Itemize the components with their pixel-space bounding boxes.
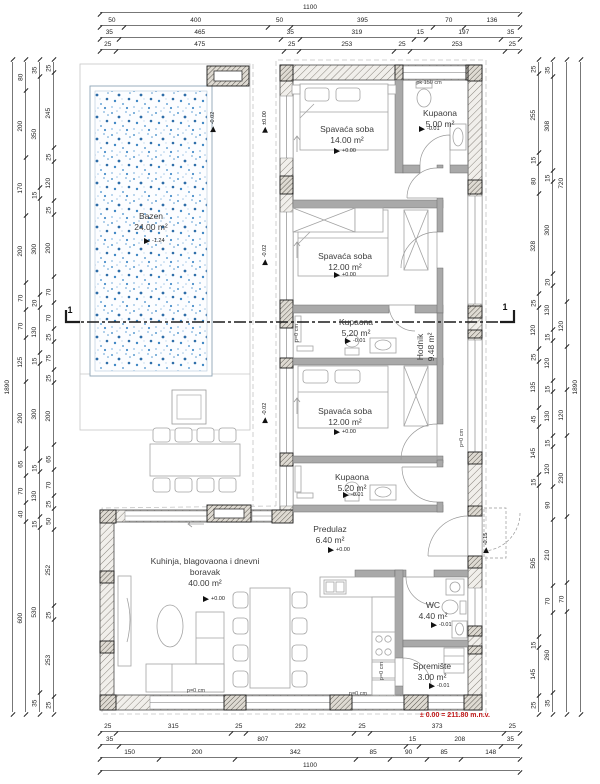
dimension-value: 15 <box>545 175 552 182</box>
dimension-segment: 308 <box>546 79 555 174</box>
elevation-marker: -0.15 <box>483 533 489 554</box>
dimension-chain: 358071520835 <box>100 736 520 745</box>
dimension-segment: 1100 <box>100 4 520 13</box>
dimension-segment: 35 <box>501 736 520 745</box>
room-name: Kuhinja, blagovaona i dnevni boravak <box>144 556 266 578</box>
dimension-segment: 25 <box>100 41 116 50</box>
elevation-marker: -0.01 <box>419 126 440 132</box>
dimension-value: 35 <box>507 30 514 37</box>
dimension-chain: 1890 <box>6 62 15 712</box>
elevation-value: -0.01 <box>439 622 452 628</box>
dimension-segment: 135 <box>532 364 541 409</box>
dimension-value: 25 <box>104 724 111 731</box>
elevation-value: -0.15 <box>483 533 489 546</box>
dimension-segment: 300 <box>33 366 42 462</box>
elevation-flag-icon <box>431 622 437 628</box>
dimension-value: 80 <box>18 74 25 81</box>
dimension-segment: 197 <box>426 29 501 38</box>
dimension-value: 65 <box>18 461 25 468</box>
dimension-value: 25 <box>46 611 53 618</box>
dimension-value: 150 <box>124 750 135 757</box>
dimension-chain: 802001702007070125200657040600 <box>19 62 28 712</box>
dimension-segment: 130 <box>546 288 555 332</box>
elevation-marker: +0.00 <box>334 148 356 154</box>
dimension-segment: 200 <box>159 749 234 758</box>
dimension-value: 253 <box>341 42 352 49</box>
elevation-value: ±0.00 <box>262 111 268 125</box>
dimension-segment: 150 <box>100 749 159 758</box>
dimension-value: 25 <box>104 42 111 49</box>
dimension-segment: 25 <box>231 723 247 732</box>
room-name: Spavaća soba <box>303 406 387 417</box>
dimension-chain: 252551580328251202513545145155051514525 <box>532 62 541 712</box>
dimension-segment: 120 <box>560 304 569 350</box>
datum-note: ± 0.00 = 211.80 m.n.v. <box>420 712 490 719</box>
elevation-value: +0.00 <box>342 148 356 154</box>
dimension-segment: 125 <box>19 340 28 384</box>
dimension-value: 120 <box>46 178 53 189</box>
dimension-segment: 148 <box>461 749 520 758</box>
dimension-value: 40 <box>18 511 25 518</box>
dimension-segment: 200 <box>47 217 56 279</box>
dimension-segment: 35 <box>281 29 300 38</box>
dimension-value: 15 <box>545 440 552 447</box>
elevation-value: -0.01 <box>351 492 364 498</box>
dimension-segment: 25 <box>284 41 300 50</box>
room-label: Spavaća soba 12.00 m² <box>303 251 387 273</box>
dimension-chain: 25475252532525325 <box>100 41 520 50</box>
elevation-marker: ±0.00 <box>262 111 268 133</box>
dimension-segment: 315 <box>116 723 231 732</box>
dimension-segment: 136 <box>464 17 520 26</box>
room-area: 6.40 m² <box>300 535 360 546</box>
dimension-value: 200 <box>18 121 25 132</box>
dimension-segment: 210 <box>546 522 555 589</box>
dimension-segment: 25 <box>47 699 56 712</box>
elevation-flag-icon <box>144 238 150 244</box>
dimension-value: 85 <box>370 750 377 757</box>
dimension-value: 125 <box>18 357 25 368</box>
dimension-value: 70 <box>18 323 25 330</box>
plan-note: p=0 cm <box>459 429 465 447</box>
dimension-value: 35 <box>287 30 294 37</box>
dimension-value: 15 <box>417 30 424 37</box>
room-name: WC <box>408 600 458 611</box>
dimension-value: 50 <box>46 518 53 525</box>
dimension-segment: 1890 <box>6 62 15 712</box>
dimension-segment: 600 <box>19 524 28 712</box>
plan-note: p=0 cm <box>349 691 367 697</box>
dimension-segment: 90 <box>390 749 426 758</box>
dimension-chain: 25315252922537325 <box>100 723 520 732</box>
room-name: Kupaona <box>410 108 470 119</box>
dimension-segment: 35 <box>100 736 119 745</box>
elevation-value: +0.00 <box>211 596 225 602</box>
room-name: Predulaz <box>300 524 360 535</box>
room-label: Spremište 3.00 m² <box>402 661 462 683</box>
room-name: Spavaća soba <box>303 251 387 262</box>
dimension-value: 20 <box>32 300 39 307</box>
dimension-segment: 130 <box>33 474 42 519</box>
dimension-segment: 350 <box>33 79 42 190</box>
dimension-value: 200 <box>18 413 25 424</box>
floorplan-drawing <box>0 0 600 784</box>
room-label: Predulaz 6.40 m² <box>300 524 360 546</box>
dimension-value: 130 <box>32 491 39 502</box>
dimension-value: 395 <box>357 18 368 25</box>
dimension-segment: 342 <box>235 749 356 758</box>
dimension-value: 35 <box>32 700 39 707</box>
dimension-segment <box>560 519 569 584</box>
dimension-segment: 85 <box>356 749 391 758</box>
dimension-segment: 400 <box>124 17 268 26</box>
dimension-value: 70 <box>46 314 53 321</box>
dimension-chain: 1100 <box>100 4 520 13</box>
elevation-marker: -0.02 <box>262 245 268 266</box>
dimension-segment: 25 <box>532 698 541 712</box>
dimension-value: 25 <box>46 334 53 341</box>
dimension-segment: 120 <box>560 392 569 438</box>
dimension-segment: 120 <box>532 310 541 351</box>
room-name: Spavaća soba <box>305 124 389 135</box>
dimension-value: 90 <box>405 750 412 757</box>
dimension-value: 25 <box>358 724 365 731</box>
dimension-value: 50 <box>276 18 283 25</box>
elevation-flag-icon <box>203 596 209 602</box>
dimension-value: 25 <box>509 42 516 49</box>
dimension-value: 85 <box>440 750 447 757</box>
elevation-marker: -0.01 <box>429 683 450 689</box>
dimension-segment: 530 <box>33 530 42 695</box>
dimension-segment: 373 <box>370 723 505 732</box>
dimension-value: 300 <box>545 224 552 235</box>
room-label: Hodnik 9.48 m² <box>415 317 437 377</box>
elevation-flag-icon <box>419 126 425 132</box>
dimension-value: 260 <box>545 650 552 661</box>
dimension-value: 1100 <box>303 763 317 770</box>
dimension-value: 300 <box>32 244 39 255</box>
dimension-value: 25 <box>509 724 516 731</box>
dimension-value: 200 <box>18 246 25 257</box>
dimension-value: 25 <box>46 207 53 214</box>
elevation-value: -0.01 <box>427 126 440 132</box>
dimension-segment: 35 <box>100 29 119 38</box>
dimension-value: 25 <box>46 375 53 382</box>
dimension-value: 300 <box>32 409 39 420</box>
dimension-value: 70 <box>559 596 566 603</box>
dimension-value: 15 <box>409 737 416 744</box>
dimension-segment: 200 <box>19 384 28 451</box>
elevation-marker: +0.00 <box>203 596 225 602</box>
dimension-value: 373 <box>432 724 443 731</box>
dimension-segment: 300 <box>546 184 555 276</box>
elevation-marker: +0.00 <box>334 429 356 435</box>
elevation-flag-icon <box>483 547 489 553</box>
dimension-value: 70 <box>445 18 452 25</box>
room-label: WC 4.40 m² <box>408 600 458 622</box>
room-name: Kupaona <box>322 472 382 483</box>
elevation-value: +0.00 <box>336 547 350 553</box>
dimension-value: 200 <box>46 242 53 253</box>
elevation-flag-icon <box>210 126 216 132</box>
dimension-value: 15 <box>32 464 39 471</box>
dimension-value: 253 <box>452 42 463 49</box>
dimension-segment: 208 <box>419 736 501 745</box>
dimension-value: 475 <box>194 42 205 49</box>
plan-note: p=0 cm <box>187 688 205 694</box>
dimension-segment: 15 <box>406 736 418 745</box>
dimension-chain: 72012012023070 <box>560 62 569 712</box>
dimension-value: 400 <box>190 18 201 25</box>
dimension-value: 15 <box>32 521 39 528</box>
dimension-chain: 3530815300201301512015130151209021070260… <box>546 62 555 712</box>
elevation-value: -0.01 <box>437 683 450 689</box>
elevation-flag-icon <box>343 492 349 498</box>
dimension-segment: 15 <box>414 29 426 38</box>
dimension-value: 35 <box>507 737 514 744</box>
dimension-segment: 465 <box>119 29 281 38</box>
dimension-value: 25 <box>46 702 53 709</box>
dimension-value: 505 <box>531 558 538 569</box>
dimension-value: 35 <box>106 30 113 37</box>
dimension-value: 35 <box>545 700 552 707</box>
dimension-segment <box>560 614 569 712</box>
dimension-value: 25 <box>46 65 53 72</box>
plan-note: 1 <box>502 302 507 312</box>
dimension-value: 170 <box>18 183 25 194</box>
dimension-value: 342 <box>290 750 301 757</box>
dimension-value: 65 <box>46 456 53 463</box>
dimension-segment: 253 <box>47 622 56 699</box>
plan-note: pk 150 cm <box>416 80 441 86</box>
room-area: 24.00 m² <box>116 222 186 233</box>
elevation-value: -0.01 <box>353 338 366 344</box>
room-label: Kupaona 5.20 m² <box>322 472 382 494</box>
elevation-marker: -0.01 <box>343 492 364 498</box>
dimension-value: 25 <box>46 153 53 160</box>
dimension-segment: 1890 <box>574 62 583 712</box>
room-label: Kupaona 5.20 m² <box>326 317 386 339</box>
dimension-chain: 35465353191519735 <box>100 29 520 38</box>
dimension-segment: 255 <box>532 76 541 156</box>
elevation-value: -0.02 <box>262 403 268 416</box>
dimension-value: 255 <box>531 110 538 121</box>
elevation-value: -0.02 <box>210 112 216 125</box>
dimension-segment: 1100 <box>100 762 520 771</box>
dimension-segment <box>560 349 569 391</box>
dimension-value: 1890 <box>5 380 12 394</box>
room-label: Spavaća soba 14.00 m² <box>305 124 389 146</box>
dimension-segment: 25 <box>504 723 520 732</box>
room-label: Kuhinja, blagovaona i dnevni boravak 40.… <box>144 556 266 589</box>
dimension-value: 120 <box>531 325 538 336</box>
dimension-segment: 50 <box>268 17 292 26</box>
dimension-value: 80 <box>531 177 538 184</box>
elevation-flag-icon <box>262 417 268 423</box>
dimension-segment: 475 <box>116 41 284 50</box>
dimension-segment: 807 <box>119 736 406 745</box>
dimension-segment: 200 <box>19 218 28 285</box>
dimension-segment: 505 <box>532 488 541 639</box>
dimension-value: 253 <box>46 655 53 666</box>
dimension-value: 120 <box>545 464 552 475</box>
dimension-value: 200 <box>192 750 203 757</box>
room-label: Spavaća soba 12.00 m² <box>303 406 387 428</box>
dimension-segment: 300 <box>33 201 42 297</box>
floor-plan-sheet: Bazen 24.00 m² Spavaća soba 14.00 m² Kup… <box>0 0 600 784</box>
elevation-flag-icon <box>262 127 268 133</box>
dimension-segment: 395 <box>291 17 433 26</box>
dimension-segment: 252 <box>47 532 56 609</box>
dimension-value: 136 <box>487 18 498 25</box>
dimension-segment: 253 <box>299 41 394 50</box>
dimension-value: 145 <box>531 669 538 680</box>
dimension-segment: 200 <box>19 93 28 160</box>
elevation-marker: -0.02 <box>210 112 216 133</box>
dimension-segment: 328 <box>532 196 541 297</box>
dimension-value: 230 <box>559 473 566 484</box>
dimension-value: 145 <box>531 448 538 459</box>
room-label: Bazen 24.00 m² <box>116 211 186 233</box>
dimension-value: 35 <box>545 67 552 74</box>
dimension-segment: 85 <box>427 749 462 758</box>
elevation-marker: +0.00 <box>328 547 350 553</box>
dimension-value: 120 <box>559 321 566 332</box>
dimension-value: 70 <box>18 295 25 302</box>
room-name: Spremište <box>402 661 462 672</box>
room-area: 3.00 m² <box>402 672 462 683</box>
elevation-marker: +0.00 <box>334 272 356 278</box>
elevation-flag-icon <box>345 338 351 344</box>
elevation-value: +0.00 <box>342 429 356 435</box>
dimension-segment: 319 <box>300 29 415 38</box>
dimension-value: 25 <box>46 501 53 508</box>
dimension-segment: 292 <box>246 723 354 732</box>
dimension-value: 308 <box>545 120 552 131</box>
dimension-segment: 130 <box>546 394 555 438</box>
dimension-segment: 170 <box>19 160 28 218</box>
dimension-value: 197 <box>458 30 469 37</box>
dimension-value: 130 <box>545 305 552 316</box>
dimension-chain: 1100 <box>100 762 520 771</box>
dimension-value: 1890 <box>573 380 580 394</box>
dimension-value: 35 <box>32 67 39 74</box>
plan-note: p=0 cm <box>294 324 300 342</box>
elevation-marker: -0.01 <box>431 622 452 628</box>
dimension-value: 208 <box>454 737 465 744</box>
dimension-segment: 130 <box>33 310 42 355</box>
dimension-value: 210 <box>545 549 552 560</box>
dimension-segment: 35 <box>33 695 42 712</box>
dimension-value: 25 <box>235 724 242 731</box>
dimension-chain: 2524525120252007070257525200657025502522… <box>47 62 56 712</box>
elevation-marker: -1.24 <box>144 238 165 244</box>
room-area: 4.40 m² <box>408 611 458 622</box>
room-name: Kupaona <box>326 317 386 328</box>
room-area: 12.00 m² <box>303 417 387 428</box>
room-area: 14.00 m² <box>305 135 389 146</box>
dimension-value: 70 <box>46 481 53 488</box>
dimension-value: 807 <box>257 737 268 744</box>
dimension-chain: 35350153002013015300151301553035 <box>33 62 42 712</box>
dimension-segment: 720 <box>560 62 569 304</box>
dimension-value: 75 <box>46 354 53 361</box>
dimension-value: 130 <box>545 411 552 422</box>
dimension-value: 135 <box>531 382 538 393</box>
elevation-value: +0.00 <box>342 272 356 278</box>
plan-note: p=0 cm <box>379 662 385 680</box>
dimension-segment: 145 <box>532 650 541 698</box>
dimension-value: 315 <box>168 724 179 731</box>
dimension-value: 25 <box>531 702 538 709</box>
elevation-flag-icon <box>262 259 268 265</box>
dimension-segment: 145 <box>532 429 541 477</box>
dimension-value: 720 <box>559 177 566 188</box>
room-name: Bazen <box>116 211 186 222</box>
dimension-value: 292 <box>295 724 306 731</box>
dimension-segment: 230 <box>560 438 569 520</box>
dimension-segment: 245 <box>47 75 56 150</box>
dimension-value: 200 <box>46 411 53 422</box>
dimension-segment: 35 <box>501 29 520 38</box>
dimension-segment: 35 <box>546 695 555 712</box>
room-name: Hodnik <box>415 317 426 377</box>
dimension-value: 70 <box>18 488 25 495</box>
dimension-segment: 253 <box>410 41 505 50</box>
dimension-value: 25 <box>288 42 295 49</box>
dimension-value: 319 <box>351 30 362 37</box>
dimension-value: 15 <box>545 334 552 341</box>
elevation-marker: -0.02 <box>262 403 268 424</box>
elevation-value: -0.02 <box>262 245 268 258</box>
room-area: 40.00 m² <box>144 578 266 589</box>
dimension-value: 70 <box>545 598 552 605</box>
dimension-value: 25 <box>531 354 538 361</box>
dimension-chain: 150200342859085148 <box>100 749 520 758</box>
dimension-value: 148 <box>485 750 496 757</box>
dimension-value: 25 <box>398 42 405 49</box>
elevation-flag-icon <box>334 429 340 435</box>
dimension-segment: 200 <box>47 385 56 447</box>
plan-note: 1 <box>67 305 72 315</box>
dimension-value: 25 <box>531 299 538 306</box>
dimension-value: 465 <box>194 30 205 37</box>
dimension-value: 120 <box>545 358 552 369</box>
elevation-flag-icon <box>334 148 340 154</box>
dimension-value: 245 <box>46 107 53 118</box>
elevation-flag-icon <box>334 272 340 278</box>
dimension-segment: 50 <box>100 17 124 26</box>
dimension-segment: 25 <box>354 723 370 732</box>
dimension-value: 120 <box>559 409 566 420</box>
dimension-value: 600 <box>18 613 25 624</box>
dimension-chain: 1890 <box>574 62 583 712</box>
dimension-value: 45 <box>531 416 538 423</box>
dimension-value: 70 <box>46 288 53 295</box>
dimension-value: 1100 <box>303 5 317 12</box>
dimension-segment: 25 <box>394 41 410 50</box>
room-area: 9.48 m² <box>426 317 437 377</box>
dimension-segment: 260 <box>546 615 555 696</box>
dimension-value: 350 <box>32 129 39 140</box>
elevation-marker: -0.01 <box>345 338 366 344</box>
dimension-value: 20 <box>545 279 552 286</box>
dimension-chain: 504005039570136 <box>100 17 520 26</box>
dimension-value: 25 <box>531 65 538 72</box>
dimension-value: 328 <box>531 240 538 251</box>
dimension-value: 90 <box>545 502 552 509</box>
elevation-flag-icon <box>328 547 334 553</box>
